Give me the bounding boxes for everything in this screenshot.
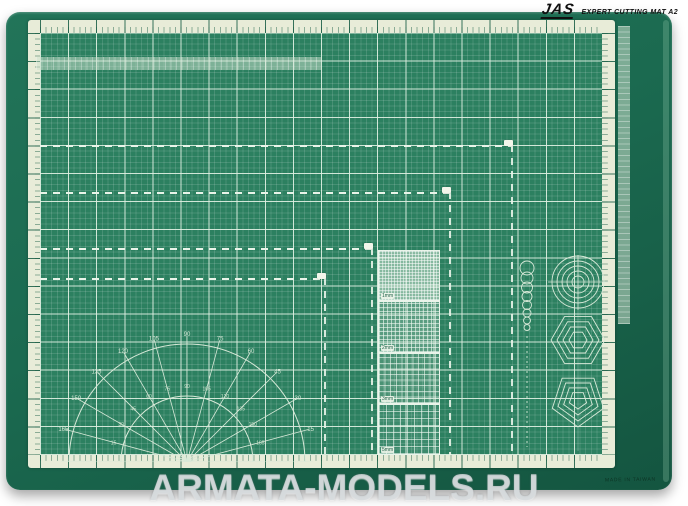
svg-text:165: 165 bbox=[58, 427, 69, 433]
top-ruler bbox=[40, 20, 602, 33]
dashed-guide-3-horizontal bbox=[40, 248, 372, 250]
svg-text:105: 105 bbox=[149, 336, 160, 342]
dashed-guide-3-vertical bbox=[371, 248, 373, 455]
size-tag-4 bbox=[317, 273, 326, 279]
shape-templates bbox=[505, 255, 617, 451]
mm-square-label: 5mm bbox=[381, 447, 394, 453]
dashed-guide-4-horizontal bbox=[40, 278, 325, 280]
svg-text:75: 75 bbox=[217, 336, 224, 342]
mm-square-label: 3mm bbox=[381, 396, 394, 402]
svg-text:150: 150 bbox=[71, 396, 82, 402]
svg-text:30: 30 bbox=[295, 396, 302, 402]
svg-text:135: 135 bbox=[237, 406, 246, 412]
svg-text:75: 75 bbox=[165, 387, 171, 393]
mat-edge-highlight bbox=[663, 20, 669, 482]
product-title: EXPERT CUTTING MAT A2 bbox=[581, 9, 678, 16]
svg-text:15: 15 bbox=[111, 440, 117, 446]
protractor-template: 1516530150451356012075105909010575120601… bbox=[46, 326, 336, 462]
svg-text:15: 15 bbox=[307, 427, 314, 433]
svg-text:120: 120 bbox=[221, 394, 230, 400]
mm-square-label: 2mm bbox=[381, 345, 394, 351]
svg-text:90: 90 bbox=[184, 384, 190, 390]
mm-square-5mm: 5mm bbox=[378, 404, 440, 455]
mm-square-3mm: 3mm bbox=[378, 353, 440, 404]
size-tag-2 bbox=[442, 187, 451, 193]
dashed-guide-2-vertical bbox=[449, 192, 451, 455]
mm-square-1mm: 1mm bbox=[378, 250, 440, 301]
svg-text:105: 105 bbox=[202, 387, 211, 393]
svg-text:45: 45 bbox=[274, 369, 281, 375]
svg-text:90: 90 bbox=[184, 332, 191, 338]
product-photo-background: 1mm 2mm 3mm 5mm 151653015045135601207510… bbox=[0, 0, 688, 506]
dashed-guide-2-horizontal bbox=[40, 192, 450, 194]
jas-logo-text: JAS bbox=[541, 2, 576, 19]
svg-text:120: 120 bbox=[118, 349, 129, 355]
left-ruler bbox=[28, 33, 40, 455]
svg-text:150: 150 bbox=[249, 422, 258, 428]
svg-text:165: 165 bbox=[256, 440, 265, 446]
svg-text:135: 135 bbox=[91, 369, 102, 375]
mm-grid-squares-column: 1mm 2mm 3mm 5mm bbox=[378, 250, 440, 455]
svg-text:45: 45 bbox=[130, 406, 136, 412]
brand-logo: JAS EXPERT CUTTING MAT A2 bbox=[542, 2, 678, 19]
size-tag-3 bbox=[364, 243, 373, 249]
light-strip-vertical bbox=[618, 26, 630, 324]
cutting-mat: 1mm 2mm 3mm 5mm 151653015045135601207510… bbox=[6, 12, 672, 490]
mm-square-2mm: 2mm bbox=[378, 301, 440, 352]
watermark-text: ARMATA-MODELS.RU bbox=[0, 469, 688, 506]
svg-text:60: 60 bbox=[248, 349, 255, 355]
svg-text:30: 30 bbox=[118, 422, 124, 428]
mm-square-label: 1mm bbox=[381, 293, 394, 299]
svg-text:60: 60 bbox=[146, 394, 152, 400]
light-strip-horizontal bbox=[36, 57, 321, 70]
dashed-guide-1-horizontal bbox=[40, 145, 512, 147]
size-tag-1 bbox=[504, 140, 513, 146]
